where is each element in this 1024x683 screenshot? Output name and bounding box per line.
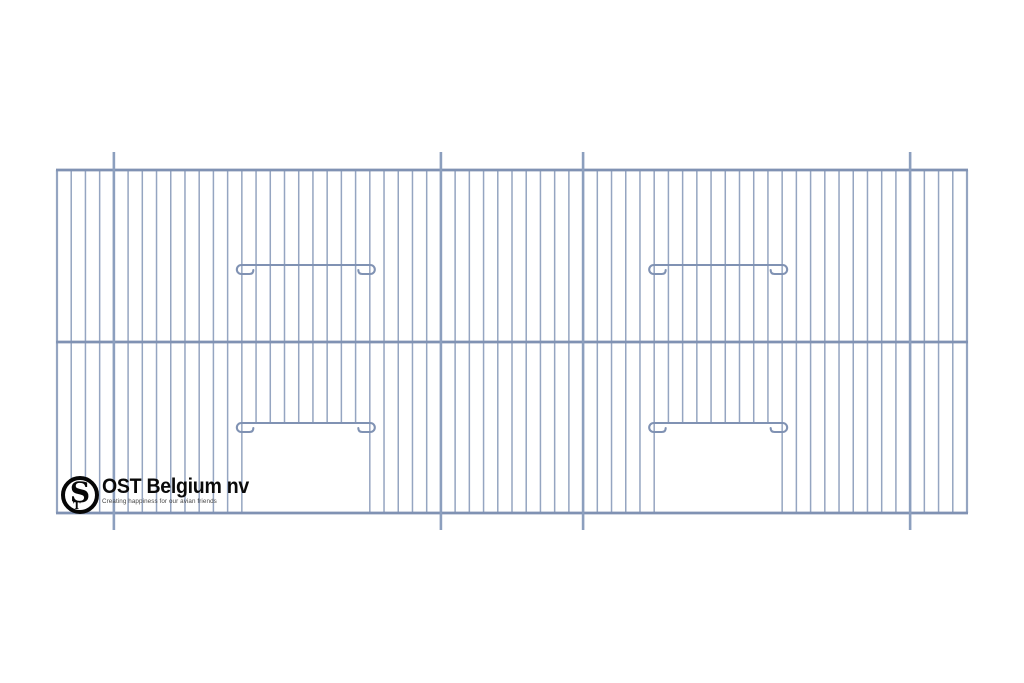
door-bottom-hook-wire xyxy=(649,423,787,432)
brand-name: OST Belgium nv xyxy=(102,477,249,497)
brand-monogram-badge: S T xyxy=(61,476,99,514)
brand-logo: S T OST Belgium nv Creating happiness fo… xyxy=(61,476,260,514)
slide-hook-wire xyxy=(649,265,787,274)
cage-front-drawing xyxy=(0,0,1024,683)
product-drawing-page: S T OST Belgium nv Creating happiness fo… xyxy=(0,0,1024,683)
monogram-small-letter: T xyxy=(73,502,80,512)
brand-tagline: Creating happiness for our avian friends xyxy=(102,498,252,506)
door-bottom-hook-wire xyxy=(237,423,375,432)
brand-text-block: OST Belgium nv Creating happiness for ou… xyxy=(102,476,260,506)
slide-hook-wire xyxy=(237,265,375,274)
